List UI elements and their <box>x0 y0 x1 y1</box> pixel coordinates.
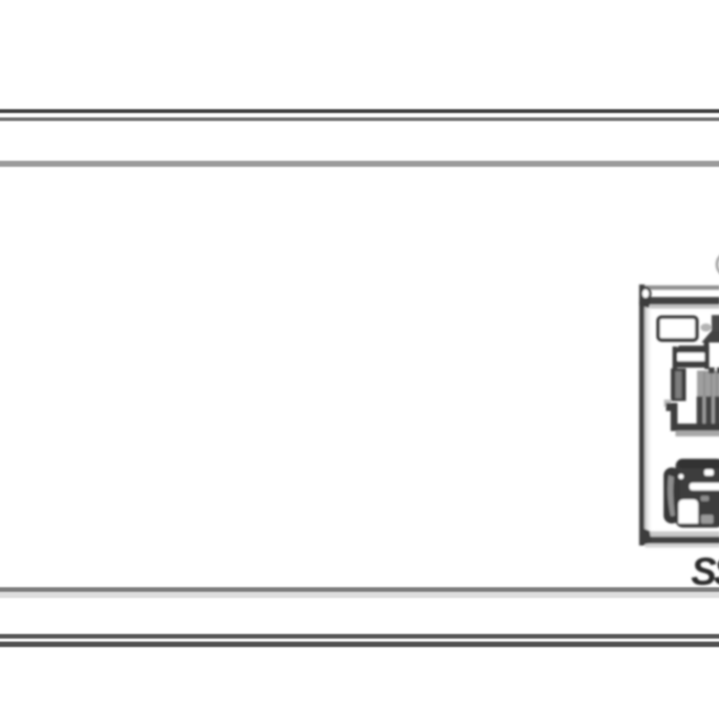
svg-text:SSD: SSD <box>691 551 719 594</box>
